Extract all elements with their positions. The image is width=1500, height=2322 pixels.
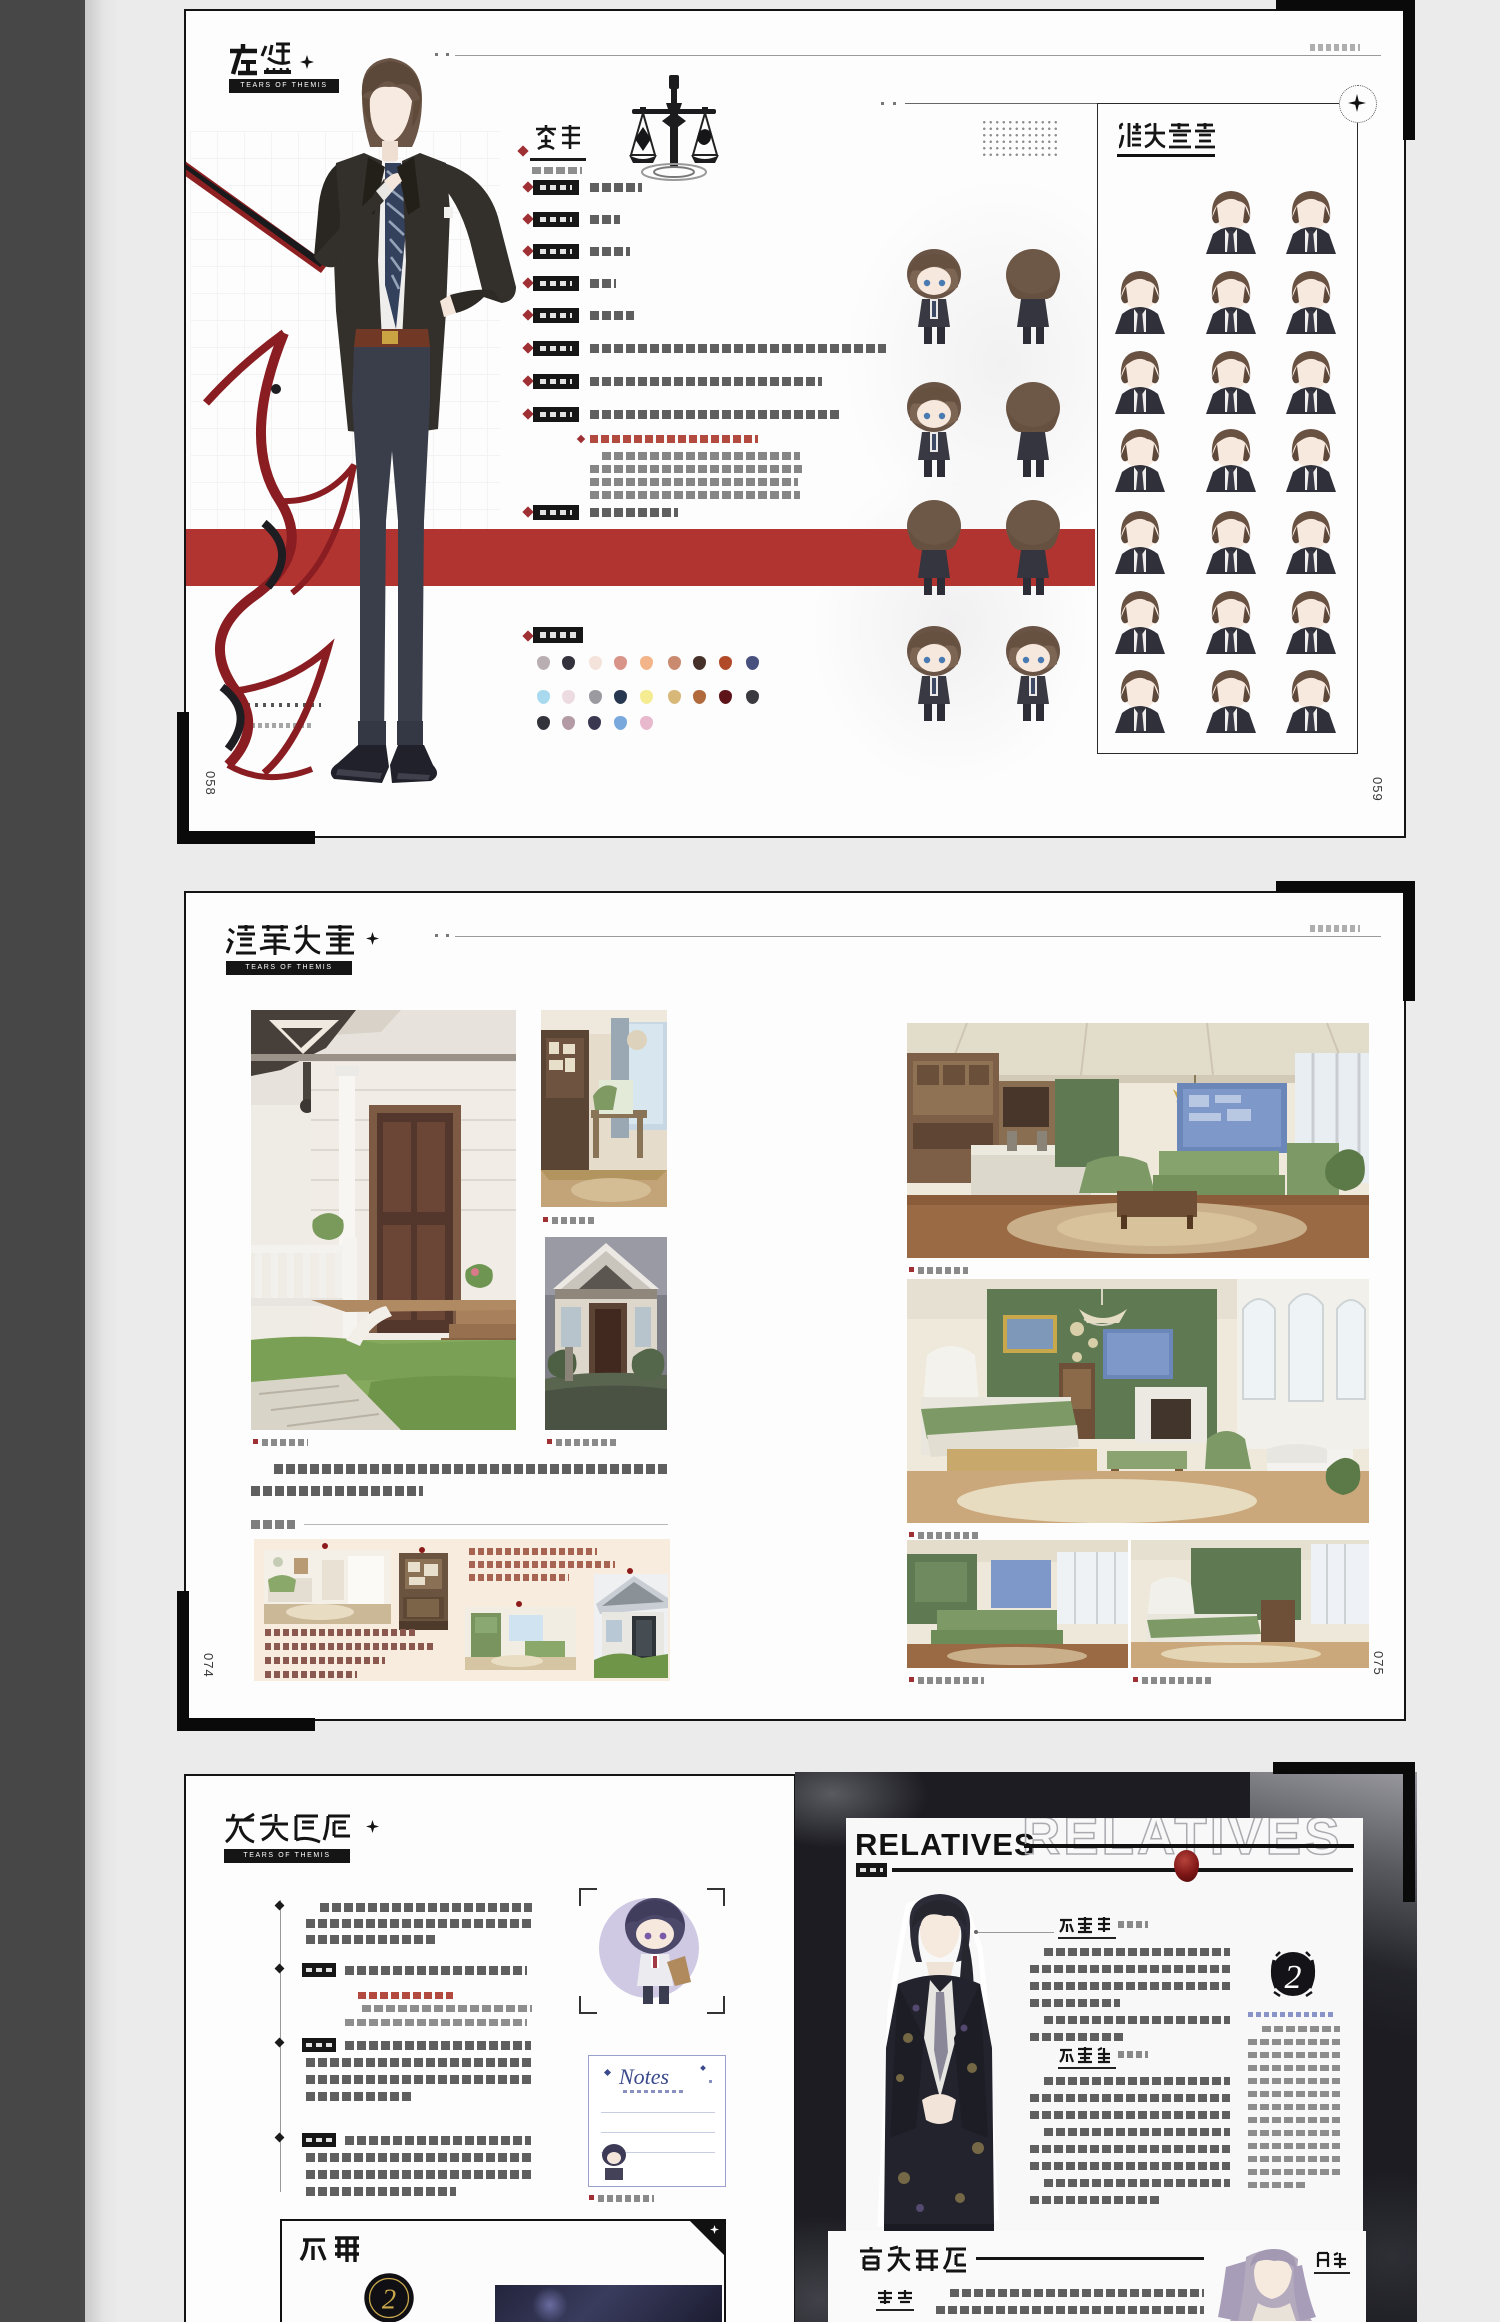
svg-text:2: 2 [382, 2284, 396, 2315]
svg-text:2: 2 [1285, 1959, 1302, 1996]
